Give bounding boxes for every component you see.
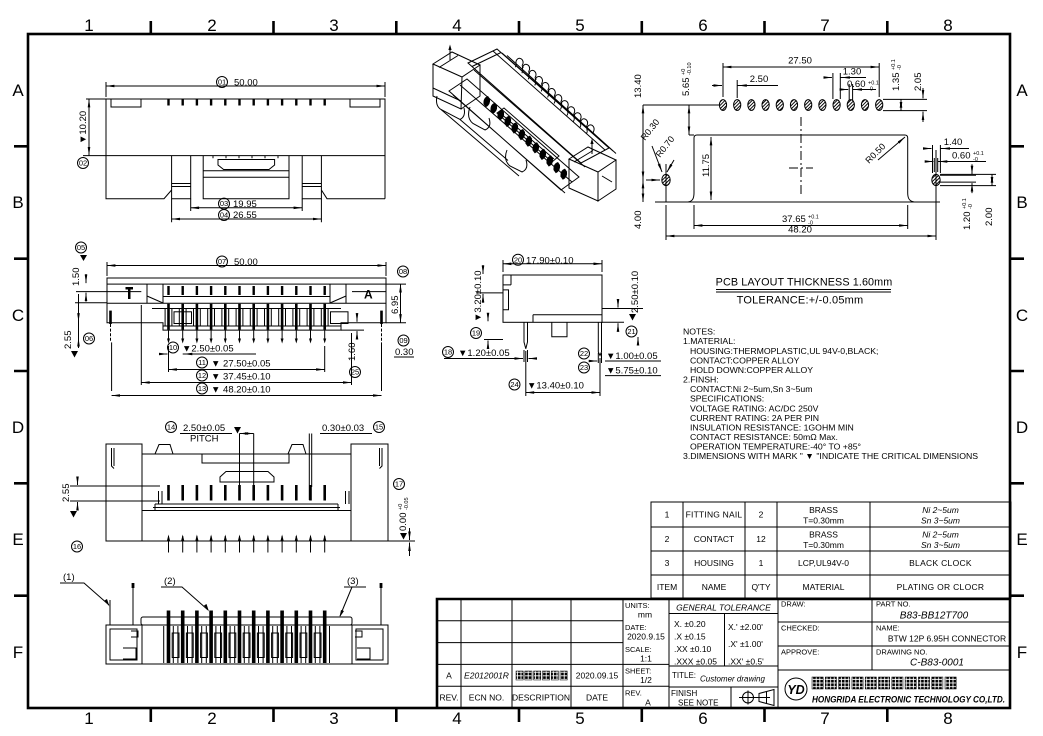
svg-text:2: 2	[207, 16, 216, 35]
svg-text:.X' ±1.00': .X' ±1.00'	[728, 639, 763, 649]
svg-text:0.30: 0.30	[395, 347, 414, 358]
svg-text:8: 8	[943, 16, 952, 35]
svg-text:Sn 3~5um: Sn 3~5um	[921, 540, 960, 550]
svg-text:08: 08	[399, 267, 407, 276]
svg-text:(1): (1)	[63, 572, 75, 583]
svg-text:14: 14	[167, 423, 175, 432]
svg-text:1.35: 1.35	[891, 73, 902, 92]
svg-text:1.20: 1.20	[962, 212, 973, 231]
svg-text:4: 4	[452, 16, 461, 35]
svg-text:.XX ±0.10: .XX ±0.10	[674, 644, 712, 654]
svg-text:.XXX ±0.05: .XXX ±0.05	[674, 657, 717, 667]
svg-text:D: D	[12, 418, 24, 437]
svg-text:PCB LAYOUT THICKNESS 1.60mm: PCB LAYOUT THICKNESS 1.60mm	[716, 277, 893, 289]
svg-text:21: 21	[627, 327, 635, 336]
svg-text:DRAW:: DRAW:	[781, 600, 806, 609]
svg-text:NAME: NAME	[702, 582, 727, 592]
svg-text:09: 09	[399, 336, 407, 345]
svg-text:F: F	[1017, 643, 1027, 662]
svg-text:TITLE:: TITLE:	[672, 671, 696, 680]
svg-text:REV.: REV.	[625, 689, 642, 698]
svg-text:A: A	[12, 81, 24, 100]
svg-text:1.30: 1.30	[843, 67, 862, 78]
svg-text:GENERAL TOLERANCE: GENERAL TOLERANCE	[676, 603, 771, 613]
svg-text:BTW 12P 6.95H CONNECTOR: BTW 12P 6.95H CONNECTOR	[888, 634, 1006, 644]
svg-text:A: A	[364, 288, 373, 302]
svg-text:2: 2	[665, 534, 670, 544]
svg-text:37.65: 37.65	[782, 214, 806, 225]
svg-text:▼10.20: ▼10.20	[78, 111, 89, 144]
svg-text:ECN NO.: ECN NO.	[469, 693, 504, 703]
svg-text:B: B	[1016, 193, 1027, 212]
svg-text:F: F	[13, 643, 23, 662]
svg-text:B: B	[12, 193, 23, 212]
svg-text:CONTACT:COPPER ALLOY: CONTACT:COPPER ALLOY	[690, 355, 800, 365]
svg-text:APPROVE:: APPROVE:	[781, 648, 819, 657]
svg-text:CONTACT: CONTACT	[694, 534, 734, 544]
svg-text:C: C	[1016, 306, 1028, 325]
svg-text:05: 05	[77, 243, 85, 252]
svg-text:-0.10: -0.10	[687, 62, 693, 75]
svg-text:E2012001R: E2012001R	[464, 671, 509, 681]
svg-text:CHECKED:: CHECKED:	[781, 624, 820, 633]
svg-text:26.55: 26.55	[233, 210, 257, 221]
svg-text:PITCH: PITCH	[190, 434, 219, 445]
svg-text:2.FINSH:: 2.FINSH:	[683, 375, 719, 385]
svg-text:48.20: 48.20	[788, 225, 812, 236]
svg-text:-0: -0	[868, 87, 873, 93]
svg-text:T=0.30mm: T=0.30mm	[803, 516, 844, 526]
svg-text:B83-BB12T700: B83-BB12T700	[900, 611, 969, 622]
svg-text:CURRENT RATING: 2A PER PIN: CURRENT RATING: 2A PER PIN	[690, 413, 819, 423]
svg-text:▼1.00±0.05: ▼1.00±0.05	[606, 351, 658, 362]
svg-text:2.50±0.05: 2.50±0.05	[183, 423, 225, 434]
svg-text:A: A	[1016, 81, 1028, 100]
svg-text:2.50: 2.50	[750, 74, 769, 85]
svg-text:FINISH: FINISH	[671, 689, 697, 698]
svg-text:1.50: 1.50	[71, 268, 82, 287]
svg-text:23: 23	[580, 363, 588, 372]
svg-text:12: 12	[756, 534, 766, 544]
svg-text:5: 5	[575, 16, 584, 35]
svg-text:C-B83-0001: C-B83-0001	[910, 658, 964, 669]
svg-text:BRASS: BRASS	[809, 505, 838, 515]
svg-text:4.00: 4.00	[633, 211, 644, 230]
svg-text:D: D	[1016, 418, 1028, 437]
svg-text:mm: mm	[638, 610, 652, 620]
svg-text:6: 6	[698, 16, 707, 35]
svg-text:6.95: 6.95	[390, 296, 401, 315]
svg-text:7: 7	[820, 709, 829, 728]
svg-text:1: 1	[665, 510, 670, 520]
svg-text:-0: -0	[973, 157, 978, 163]
svg-text:0.00: 0.00	[398, 513, 409, 532]
svg-text:7: 7	[820, 16, 829, 35]
svg-text:6: 6	[698, 709, 707, 728]
svg-text:CONTACT:Ni 2~5um,Sn 3~5um: CONTACT:Ni 2~5um,Sn 3~5um	[690, 384, 812, 394]
svg-text:3: 3	[665, 558, 670, 568]
svg-text:Ni 2~5um: Ni 2~5um	[922, 530, 959, 540]
svg-text:T=0.30mm: T=0.30mm	[803, 540, 844, 550]
svg-text:17.90±0.10: 17.90±0.10	[526, 255, 573, 266]
svg-text:DESCRIPTION: DESCRIPTION	[512, 693, 570, 703]
svg-text:5: 5	[575, 709, 584, 728]
svg-text:▼13.40±0.10: ▼13.40±0.10	[527, 381, 584, 392]
svg-text:18: 18	[444, 348, 452, 357]
svg-text:Q'TY: Q'TY	[751, 582, 770, 592]
svg-text:▼2.50±0.05: ▼2.50±0.05	[182, 344, 234, 355]
svg-text:0.60: 0.60	[847, 79, 866, 90]
svg-text:E: E	[12, 530, 23, 549]
svg-text:8: 8	[943, 709, 952, 728]
svg-text:MATERIAL: MATERIAL	[803, 582, 845, 592]
svg-text:C: C	[12, 306, 24, 325]
svg-text:▼ 27.50±0.05: ▼ 27.50±0.05	[211, 359, 271, 370]
svg-text:2.50±0.10: 2.50±0.10	[630, 271, 641, 313]
svg-text:DRAWING NO.: DRAWING NO.	[876, 648, 927, 657]
svg-text:HOUSING: HOUSING	[694, 558, 734, 568]
svg-text:Customer drawing: Customer drawing	[700, 675, 765, 684]
svg-text:HOLD DOWN:COPPER ALLOY: HOLD DOWN:COPPER ALLOY	[690, 365, 813, 375]
svg-text:16: 16	[73, 542, 81, 551]
svg-text:HOUSING:THERMOPLASTIC,UL 94V-: HOUSING:THERMOPLASTIC,UL 94V-0,BLACK;	[690, 346, 878, 356]
svg-text:.XX' ±0.5': .XX' ±0.5'	[728, 657, 764, 667]
svg-text:▼1.20±0.05: ▼1.20±0.05	[458, 348, 510, 359]
svg-text:2020.09.15: 2020.09.15	[576, 671, 619, 681]
svg-text:10: 10	[169, 343, 177, 352]
svg-text:E: E	[1016, 530, 1027, 549]
svg-text:SPECIFICATIONS:: SPECIFICATIONS:	[690, 394, 764, 404]
svg-text:▼ 48.20±0.10: ▼ 48.20±0.10	[211, 385, 271, 396]
svg-text:-0: -0	[897, 65, 903, 70]
svg-text:.X ±0.15: .X ±0.15	[674, 632, 706, 642]
svg-text:20: 20	[514, 255, 522, 264]
svg-text:1:1: 1:1	[640, 654, 652, 664]
svg-text:1.60: 1.60	[347, 343, 358, 362]
svg-text:12: 12	[198, 371, 206, 380]
svg-text:INSULATION RESISTANCE: 1GOHM: INSULATION RESISTANCE: 1GOHM MIN	[690, 423, 854, 433]
svg-text:3: 3	[329, 709, 338, 728]
svg-text:2.00: 2.00	[984, 208, 995, 227]
svg-text:2.55: 2.55	[61, 484, 72, 503]
svg-text:13.40: 13.40	[633, 74, 644, 98]
svg-text:OPERATION TEMPERATURE:-40° T: OPERATION TEMPERATURE:-40° TO +85°	[690, 442, 861, 452]
svg-text:3.DIMENSIONS WITH MARK " ▼: 3.DIMENSIONS WITH MARK " ▼ "INDICATE THE…	[683, 451, 978, 461]
svg-text:19: 19	[472, 329, 480, 338]
svg-text:11.75: 11.75	[701, 154, 712, 177]
svg-text:2.05: 2.05	[913, 73, 924, 92]
svg-text:NOTES:: NOTES:	[683, 327, 715, 337]
svg-text:YD: YD	[787, 683, 804, 697]
svg-text:24: 24	[510, 380, 518, 389]
svg-text:DATE: DATE	[586, 693, 608, 703]
svg-text:50.00: 50.00	[234, 257, 258, 268]
svg-text:SEE NOTE: SEE NOTE	[678, 699, 718, 708]
svg-text:BRASS: BRASS	[809, 530, 838, 540]
svg-text:2020.9.15: 2020.9.15	[627, 632, 665, 642]
svg-text:13: 13	[198, 384, 206, 393]
svg-text:1: 1	[84, 709, 93, 728]
svg-text:▼ 37.45±0.10: ▼ 37.45±0.10	[211, 372, 271, 383]
svg-text:1.MATERIAL:: 1.MATERIAL:	[683, 336, 735, 346]
svg-text:2: 2	[759, 510, 764, 520]
svg-text:02: 02	[79, 159, 87, 168]
svg-text:25: 25	[351, 368, 359, 377]
svg-text:A: A	[645, 698, 651, 708]
svg-text:▼5.75±0.10: ▼5.75±0.10	[606, 366, 658, 377]
svg-text:Ni 2~5um: Ni 2~5um	[922, 505, 959, 515]
svg-text:Sn 3~5um: Sn 3~5um	[921, 516, 960, 526]
svg-text:(2): (2)	[164, 576, 176, 587]
svg-text:1: 1	[759, 558, 764, 568]
svg-text:19.95: 19.95	[233, 199, 257, 210]
svg-text:04: 04	[220, 211, 228, 220]
svg-text:06: 06	[85, 334, 93, 343]
svg-text:TOLERANCE:+/-0.05mm: TOLERANCE:+/-0.05mm	[737, 295, 864, 307]
svg-text:X. ±0.20: X. ±0.20	[674, 619, 706, 629]
svg-text:22: 22	[580, 349, 588, 358]
svg-text:15: 15	[375, 423, 383, 432]
svg-text:5.65: 5.65	[681, 78, 692, 97]
svg-text:LCP,UL94V-0: LCP,UL94V-0	[798, 558, 849, 568]
svg-text:2: 2	[207, 709, 216, 728]
svg-text:3: 3	[329, 16, 338, 35]
svg-text:1: 1	[84, 16, 93, 35]
svg-text:07: 07	[218, 257, 226, 266]
svg-text:PART NO.: PART NO.	[876, 600, 911, 609]
svg-text:-0: -0	[968, 204, 974, 209]
svg-text:03: 03	[220, 199, 228, 208]
svg-text:X.' ±2.00': X.' ±2.00'	[728, 622, 763, 632]
svg-text:FITTING NAIL: FITTING NAIL	[686, 510, 743, 520]
svg-text:0.60: 0.60	[952, 151, 971, 162]
svg-text:HONGRIDA ELECTRONIC TECHNOLO: HONGRIDA ELECTRONIC TECHNOLOGY CO,LTD.	[812, 695, 1005, 705]
svg-text:NAME:: NAME:	[876, 624, 900, 633]
svg-text:01: 01	[218, 78, 226, 87]
svg-text:-0.05: -0.05	[404, 497, 410, 510]
svg-text:CONTACT RESISTANCE: 50mΩ Ma: CONTACT RESISTANCE: 50mΩ Max.	[690, 432, 838, 442]
svg-text:1.40: 1.40	[944, 137, 963, 148]
svg-text:REV.: REV.	[439, 693, 458, 703]
svg-text:▼3.20±0.10: ▼3.20±0.10	[473, 270, 484, 322]
svg-text:17: 17	[395, 480, 403, 489]
svg-text:PLATING OR CLOCR: PLATING OR CLOCR	[897, 582, 985, 592]
svg-text:ITEM: ITEM	[657, 582, 677, 592]
svg-text:VOLTAGE RATING: AC/DC 250V: VOLTAGE RATING: AC/DC 250V	[690, 403, 819, 413]
svg-text:11: 11	[198, 358, 206, 367]
svg-text:50.00: 50.00	[234, 78, 258, 89]
svg-text:2.55: 2.55	[63, 331, 74, 350]
svg-text:1/2: 1/2	[640, 675, 652, 685]
svg-text:A: A	[446, 671, 452, 681]
svg-text:(3): (3)	[347, 576, 359, 587]
svg-text:BLACK CLOCK: BLACK CLOCK	[909, 558, 972, 568]
svg-text:0.30±0.03: 0.30±0.03	[322, 423, 364, 434]
svg-text:27.50: 27.50	[788, 56, 812, 67]
svg-text:4: 4	[452, 709, 461, 728]
